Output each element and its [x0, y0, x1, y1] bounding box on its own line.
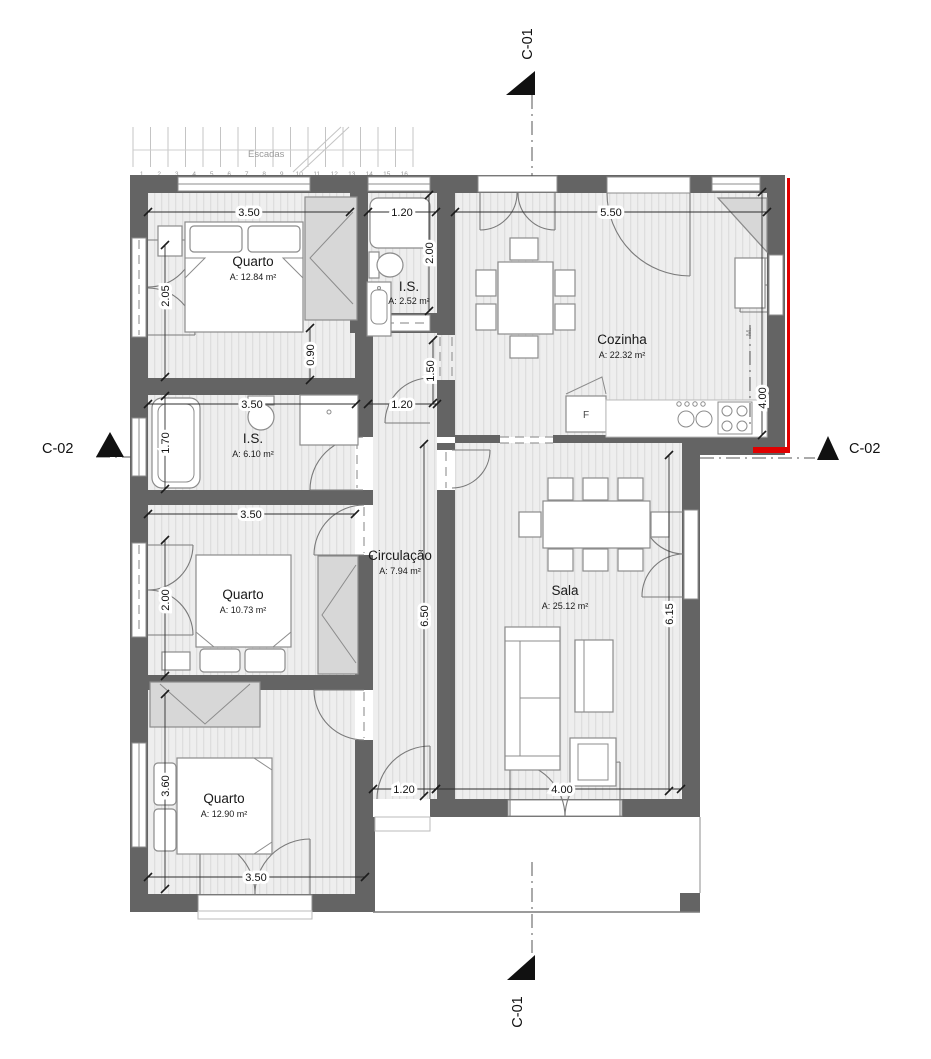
section-c02-left: C-02 [42, 432, 131, 457]
svg-text:2.05: 2.05 [160, 285, 172, 306]
svg-text:1.20: 1.20 [391, 399, 412, 411]
quarto3-furniture [150, 682, 272, 854]
area-sala: A: 25.12 m² [542, 601, 589, 611]
area-is-main: A: 6.10 m² [232, 449, 274, 459]
svg-text:3.50: 3.50 [241, 399, 262, 411]
svg-text:3.50: 3.50 [238, 207, 259, 219]
section-arrow-icon [507, 955, 535, 980]
exterior-stairs: 12345678910111213141516 Escadas [133, 127, 413, 178]
window-quarto1-top [178, 177, 310, 191]
fridge-label: F [583, 410, 589, 421]
section-c01-top-label: C-01 [520, 28, 536, 59]
kitchen-table [498, 262, 553, 334]
section-arrow-icon [817, 436, 839, 460]
svg-text:1.70: 1.70 [160, 432, 172, 453]
section-c01-bottom: C-01 [507, 862, 535, 1028]
machine-label: M. [744, 328, 753, 336]
svg-text:0.90: 0.90 [305, 344, 317, 365]
sideboard [570, 738, 616, 786]
section-c01-bottom-label: C-01 [510, 996, 526, 1027]
kitchen-counter [606, 400, 767, 437]
label-sala: Sala [551, 583, 579, 598]
window-cozinha-corner [712, 177, 760, 191]
label-quarto2: Quarto [222, 587, 263, 602]
section-c01-top: C-01 [506, 28, 536, 176]
area-quarto1: A: 12.84 m² [230, 272, 277, 282]
svg-text:1.50: 1.50 [425, 360, 437, 381]
area-cozinha: A: 22.32 m² [599, 350, 646, 360]
svg-text:3.60: 3.60 [160, 775, 172, 796]
label-is-main: I.S. [243, 431, 263, 446]
label-quarto3: Quarto [203, 791, 244, 806]
svg-text:2.00: 2.00 [424, 242, 436, 263]
section-c02-left-label: C-02 [42, 441, 73, 457]
section-arrow-icon [506, 71, 535, 95]
label-circulacao: Circulação [368, 548, 432, 563]
section-c02-right-label: C-02 [849, 441, 880, 457]
window-quarto3-left [132, 743, 146, 847]
svg-text:1.20: 1.20 [391, 207, 412, 219]
quarto2-wardrobe [318, 556, 358, 674]
floor-plan: 12345678910111213141516 Escadas [0, 0, 931, 1059]
svg-text:6.50: 6.50 [419, 605, 431, 626]
vanity [300, 395, 358, 445]
window-is-main-left [132, 418, 146, 476]
svg-text:4.00: 4.00 [551, 784, 572, 796]
svg-text:5.50: 5.50 [600, 207, 621, 219]
svg-text:4.00: 4.00 [757, 387, 769, 408]
is-small-door-opening [385, 315, 430, 331]
window-is-small-top [368, 177, 430, 191]
kitchen-sala-opening [500, 437, 553, 443]
svg-text:1.20: 1.20 [393, 784, 414, 796]
dining-table [543, 501, 650, 548]
area-quarto2: A: 10.73 m² [220, 605, 267, 615]
toilet-bowl [377, 253, 403, 277]
quarto3-wardrobe [150, 682, 260, 727]
stairs-label: Escadas [248, 149, 285, 160]
svg-text:6.15: 6.15 [664, 603, 676, 624]
shower [370, 198, 430, 248]
svg-text:3.50: 3.50 [240, 509, 261, 521]
floor-plan-canvas: 12345678910111213141516 Escadas [0, 0, 931, 1059]
svg-text:2.00: 2.00 [160, 589, 172, 610]
label-is-small: I.S. [399, 279, 419, 294]
label-cozinha: Cozinha [597, 332, 647, 347]
label-quarto1: Quarto [232, 254, 273, 269]
section-arrow-icon [96, 432, 124, 457]
area-is-small: A: 2.52 m² [388, 296, 430, 306]
area-quarto3: A: 12.90 m² [201, 809, 248, 819]
area-circulacao: A: 7.94 m² [379, 566, 421, 576]
tv-unit [575, 640, 613, 712]
svg-text:3.50: 3.50 [245, 872, 266, 884]
